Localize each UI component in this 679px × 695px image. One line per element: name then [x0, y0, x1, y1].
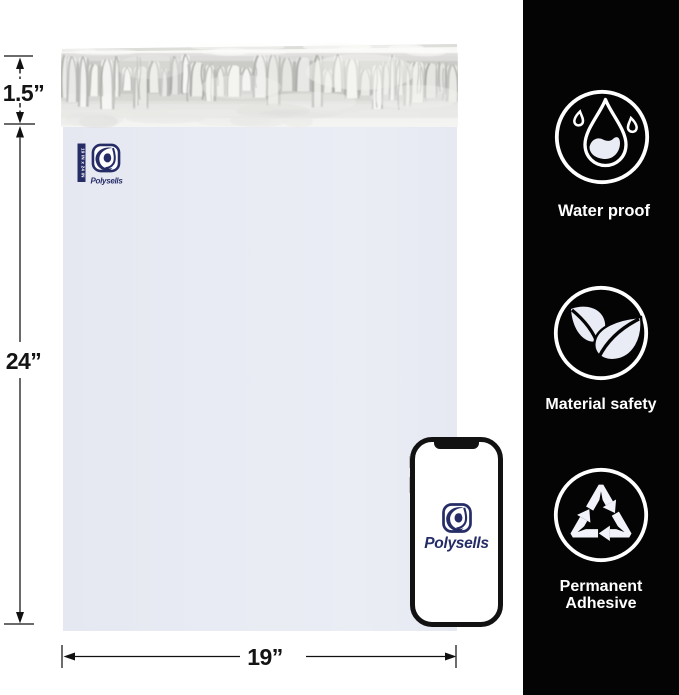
svg-text:Polysells: Polysells — [91, 177, 124, 186]
svg-text:19 IN x 24 IN: 19 IN x 24 IN — [81, 148, 86, 178]
